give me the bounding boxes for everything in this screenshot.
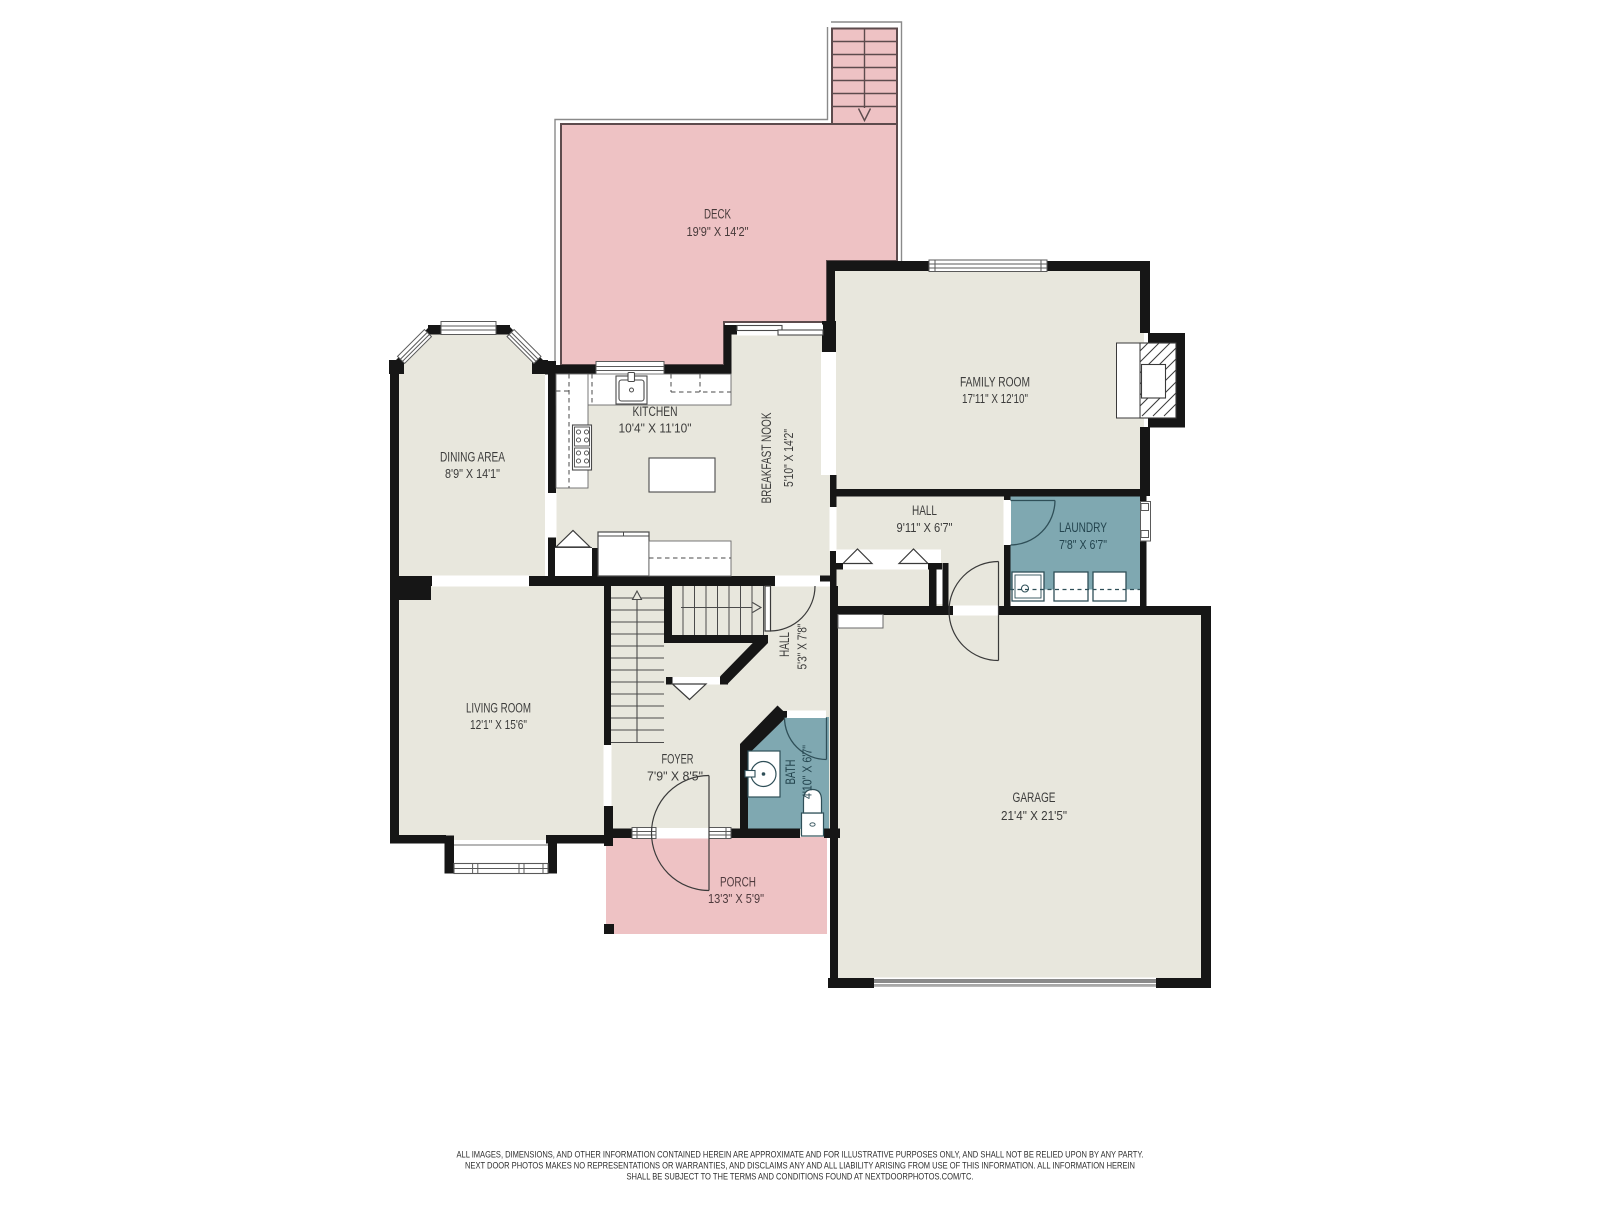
svg-text:LAUNDRY: LAUNDRY <box>1059 520 1107 535</box>
svg-text:12'1" X 15'6": 12'1" X 15'6" <box>470 717 527 732</box>
svg-text:19'9" X 14'2": 19'9" X 14'2" <box>687 224 749 239</box>
svg-text:17'11" X 12'10": 17'11" X 12'10" <box>962 391 1028 406</box>
svg-text:DINING AREA: DINING AREA <box>440 450 505 465</box>
svg-text:9'11" X 6'7": 9'11" X 6'7" <box>897 520 953 535</box>
svg-text:FOYER: FOYER <box>662 752 694 767</box>
svg-text:FAMILY ROOM: FAMILY ROOM <box>960 375 1030 390</box>
svg-text:7'9" X 8'5": 7'9" X 8'5" <box>647 769 703 784</box>
svg-text:5'10" X 14'2": 5'10" X 14'2" <box>781 429 796 487</box>
svg-text:7'8" X 6'7": 7'8" X 6'7" <box>1059 537 1107 552</box>
svg-text:BATH: BATH <box>783 760 798 785</box>
svg-text:ALL IMAGES, DIMENSIONS, AND OT: ALL IMAGES, DIMENSIONS, AND OTHER INFORM… <box>457 1150 1144 1160</box>
svg-text:4'10" X 6'7": 4'10" X 6'7" <box>800 745 815 799</box>
svg-text:SHALL BE SUBJECT TO THE TERMS: SHALL BE SUBJECT TO THE TERMS AND CONDIT… <box>627 1172 974 1182</box>
svg-text:10'4" X 11'10": 10'4" X 11'10" <box>619 421 692 436</box>
svg-text:PORCH: PORCH <box>720 875 756 890</box>
svg-text:LIVING ROOM: LIVING ROOM <box>466 701 531 716</box>
svg-text:DECK: DECK <box>704 207 731 222</box>
svg-text:GARAGE: GARAGE <box>1013 790 1056 805</box>
svg-text:KITCHEN: KITCHEN <box>633 404 678 419</box>
svg-text:8'9" X 14'1": 8'9" X 14'1" <box>445 466 500 481</box>
svg-text:13'3" X 5'9": 13'3" X 5'9" <box>708 891 764 906</box>
svg-text:HALL: HALL <box>777 632 792 657</box>
svg-text:BREAKFAST NOOK: BREAKFAST NOOK <box>759 413 774 504</box>
svg-text:NEXT DOOR PHOTOS MAKES NO REPR: NEXT DOOR PHOTOS MAKES NO REPRESENTATION… <box>465 1161 1135 1171</box>
svg-text:HALL: HALL <box>912 503 937 518</box>
svg-text:21'4" X 21'5": 21'4" X 21'5" <box>1001 808 1067 823</box>
svg-text:5'3" X 7'8": 5'3" X 7'8" <box>795 624 810 670</box>
